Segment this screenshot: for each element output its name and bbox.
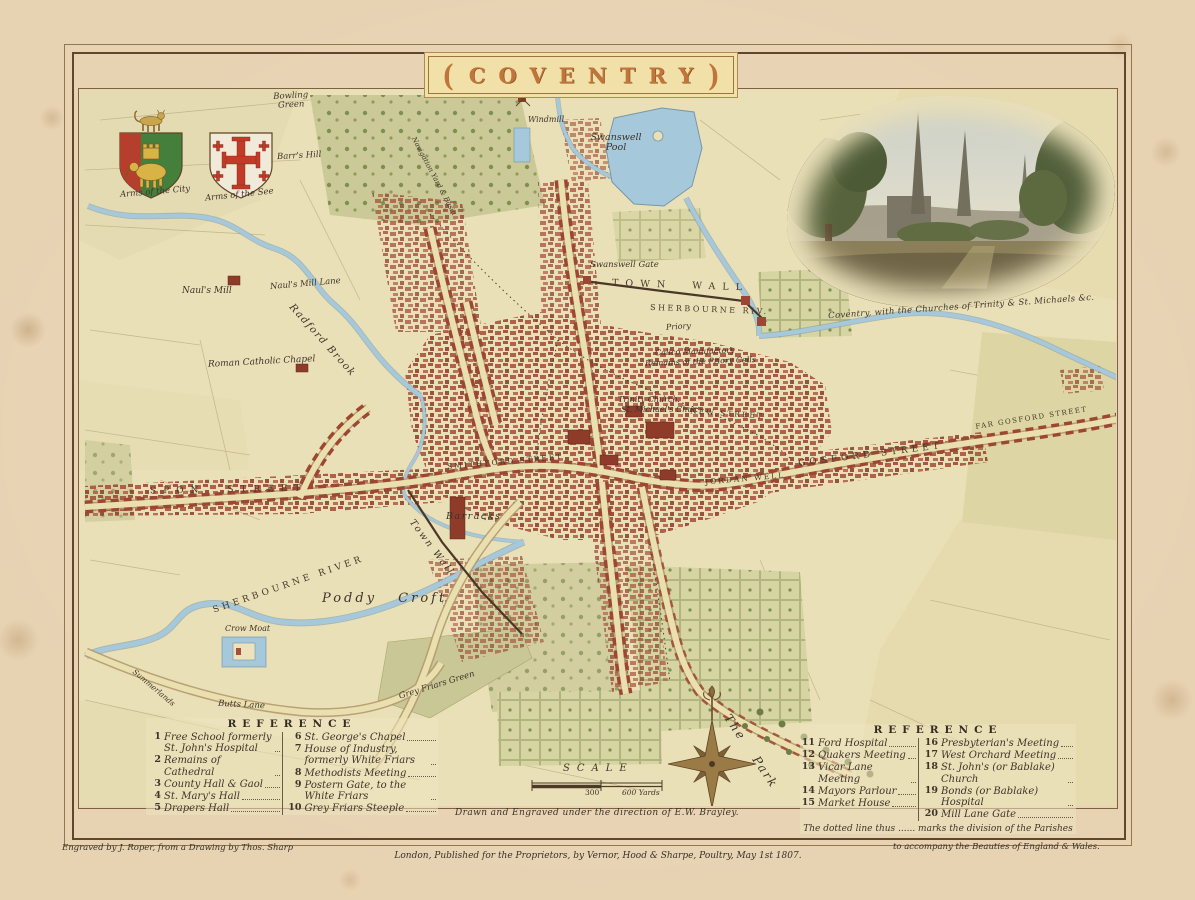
parish-boundary-note: The dotted line thus ...... marks the di… xyxy=(800,823,1076,834)
map-label-poddy-croft: Poddy Croft xyxy=(322,592,447,606)
banner-bracket-left-icon: ( xyxy=(442,57,453,93)
reference-item: 19Bonds (or Bablake) Hospital xyxy=(923,786,1075,808)
map-label-bowling-green: Bowling Green xyxy=(266,91,317,112)
map-label-nauls-mill: Naul's Mill xyxy=(182,287,232,297)
canal-basin xyxy=(514,128,530,162)
crest-cat-icon xyxy=(135,110,165,132)
reference-item: 14Mayors Parlour xyxy=(800,786,918,797)
reference-item: 5Drapers Hall xyxy=(146,803,282,814)
reference-item: 12Quakers Meeting xyxy=(800,750,918,761)
reference-item: 1Free School formerly St. John's Hospita… xyxy=(146,732,282,754)
reference-item: 4St. Mary's Hall xyxy=(146,791,282,802)
direction-credit: Drawn and Engraved under the direction o… xyxy=(347,808,847,818)
reference-item: 17West Orchard Meeting xyxy=(923,750,1075,761)
reference-item: 9Postern Gate, to the White Friars xyxy=(287,780,438,802)
map-label-barracks: Barracks xyxy=(446,512,501,522)
scale-mid-value: 300 xyxy=(585,789,599,797)
banner-bracket-right-icon: ) xyxy=(708,57,719,93)
crow-moat xyxy=(222,637,266,667)
reference-right-title: REFERENCE xyxy=(800,724,1076,736)
map-label-st-michaels: St. Michael's Chur. xyxy=(621,406,698,415)
map-title: COVENTRY xyxy=(456,63,707,88)
reference-item: 3County Hall & Gaol xyxy=(146,779,282,790)
map-label-priory: Priory xyxy=(666,322,691,333)
map-label-trinity-church: Trinity Church xyxy=(618,396,678,405)
reference-item: 18St. John's (or Bablake) Church xyxy=(923,762,1075,784)
antique-map-page: { "palette": { "paper": "#e7d2b2", "map_… xyxy=(0,0,1195,900)
reference-item: 2Remains of Cathedral xyxy=(146,755,282,777)
reference-item: 11Ford Hospital xyxy=(800,738,918,749)
map-label-swanswell-pool: Swanswell Pool xyxy=(584,133,648,154)
map-label-crow-moat: Crow Moat xyxy=(225,625,270,634)
reference-item: 6St. George's Chapel xyxy=(287,732,438,743)
engraver-credit: Engraved by J. Roper, from a Drawing by … xyxy=(62,843,293,853)
reference-table-left: REFERENCE 1Free School formerly St. John… xyxy=(146,718,438,815)
reference-item: 8Methodists Meeting xyxy=(287,768,438,779)
reference-item: 16Presbyterian's Meeting xyxy=(923,738,1075,749)
map-label-windmill: Windmill xyxy=(528,116,564,125)
reference-item: 7House of Industry, formerly White Friar… xyxy=(287,744,438,766)
title-banner: ( COVENTRY ) xyxy=(428,56,734,94)
series-credit: to accompany the Beauties of England & W… xyxy=(893,842,1138,852)
scale-title: SCALE xyxy=(563,763,634,774)
map-label-swanswell-gate: Swanswell Gate xyxy=(590,261,659,270)
reference-item: 13Vicar Lane Meeting xyxy=(800,762,918,784)
publisher-credit: London, Published for the Proprietors, b… xyxy=(348,851,848,861)
reference-left-title: REFERENCE xyxy=(146,718,438,730)
scale-end-value: 600 Yards xyxy=(622,789,660,797)
reference-item: 20Mill Lane Gate xyxy=(923,809,1075,820)
